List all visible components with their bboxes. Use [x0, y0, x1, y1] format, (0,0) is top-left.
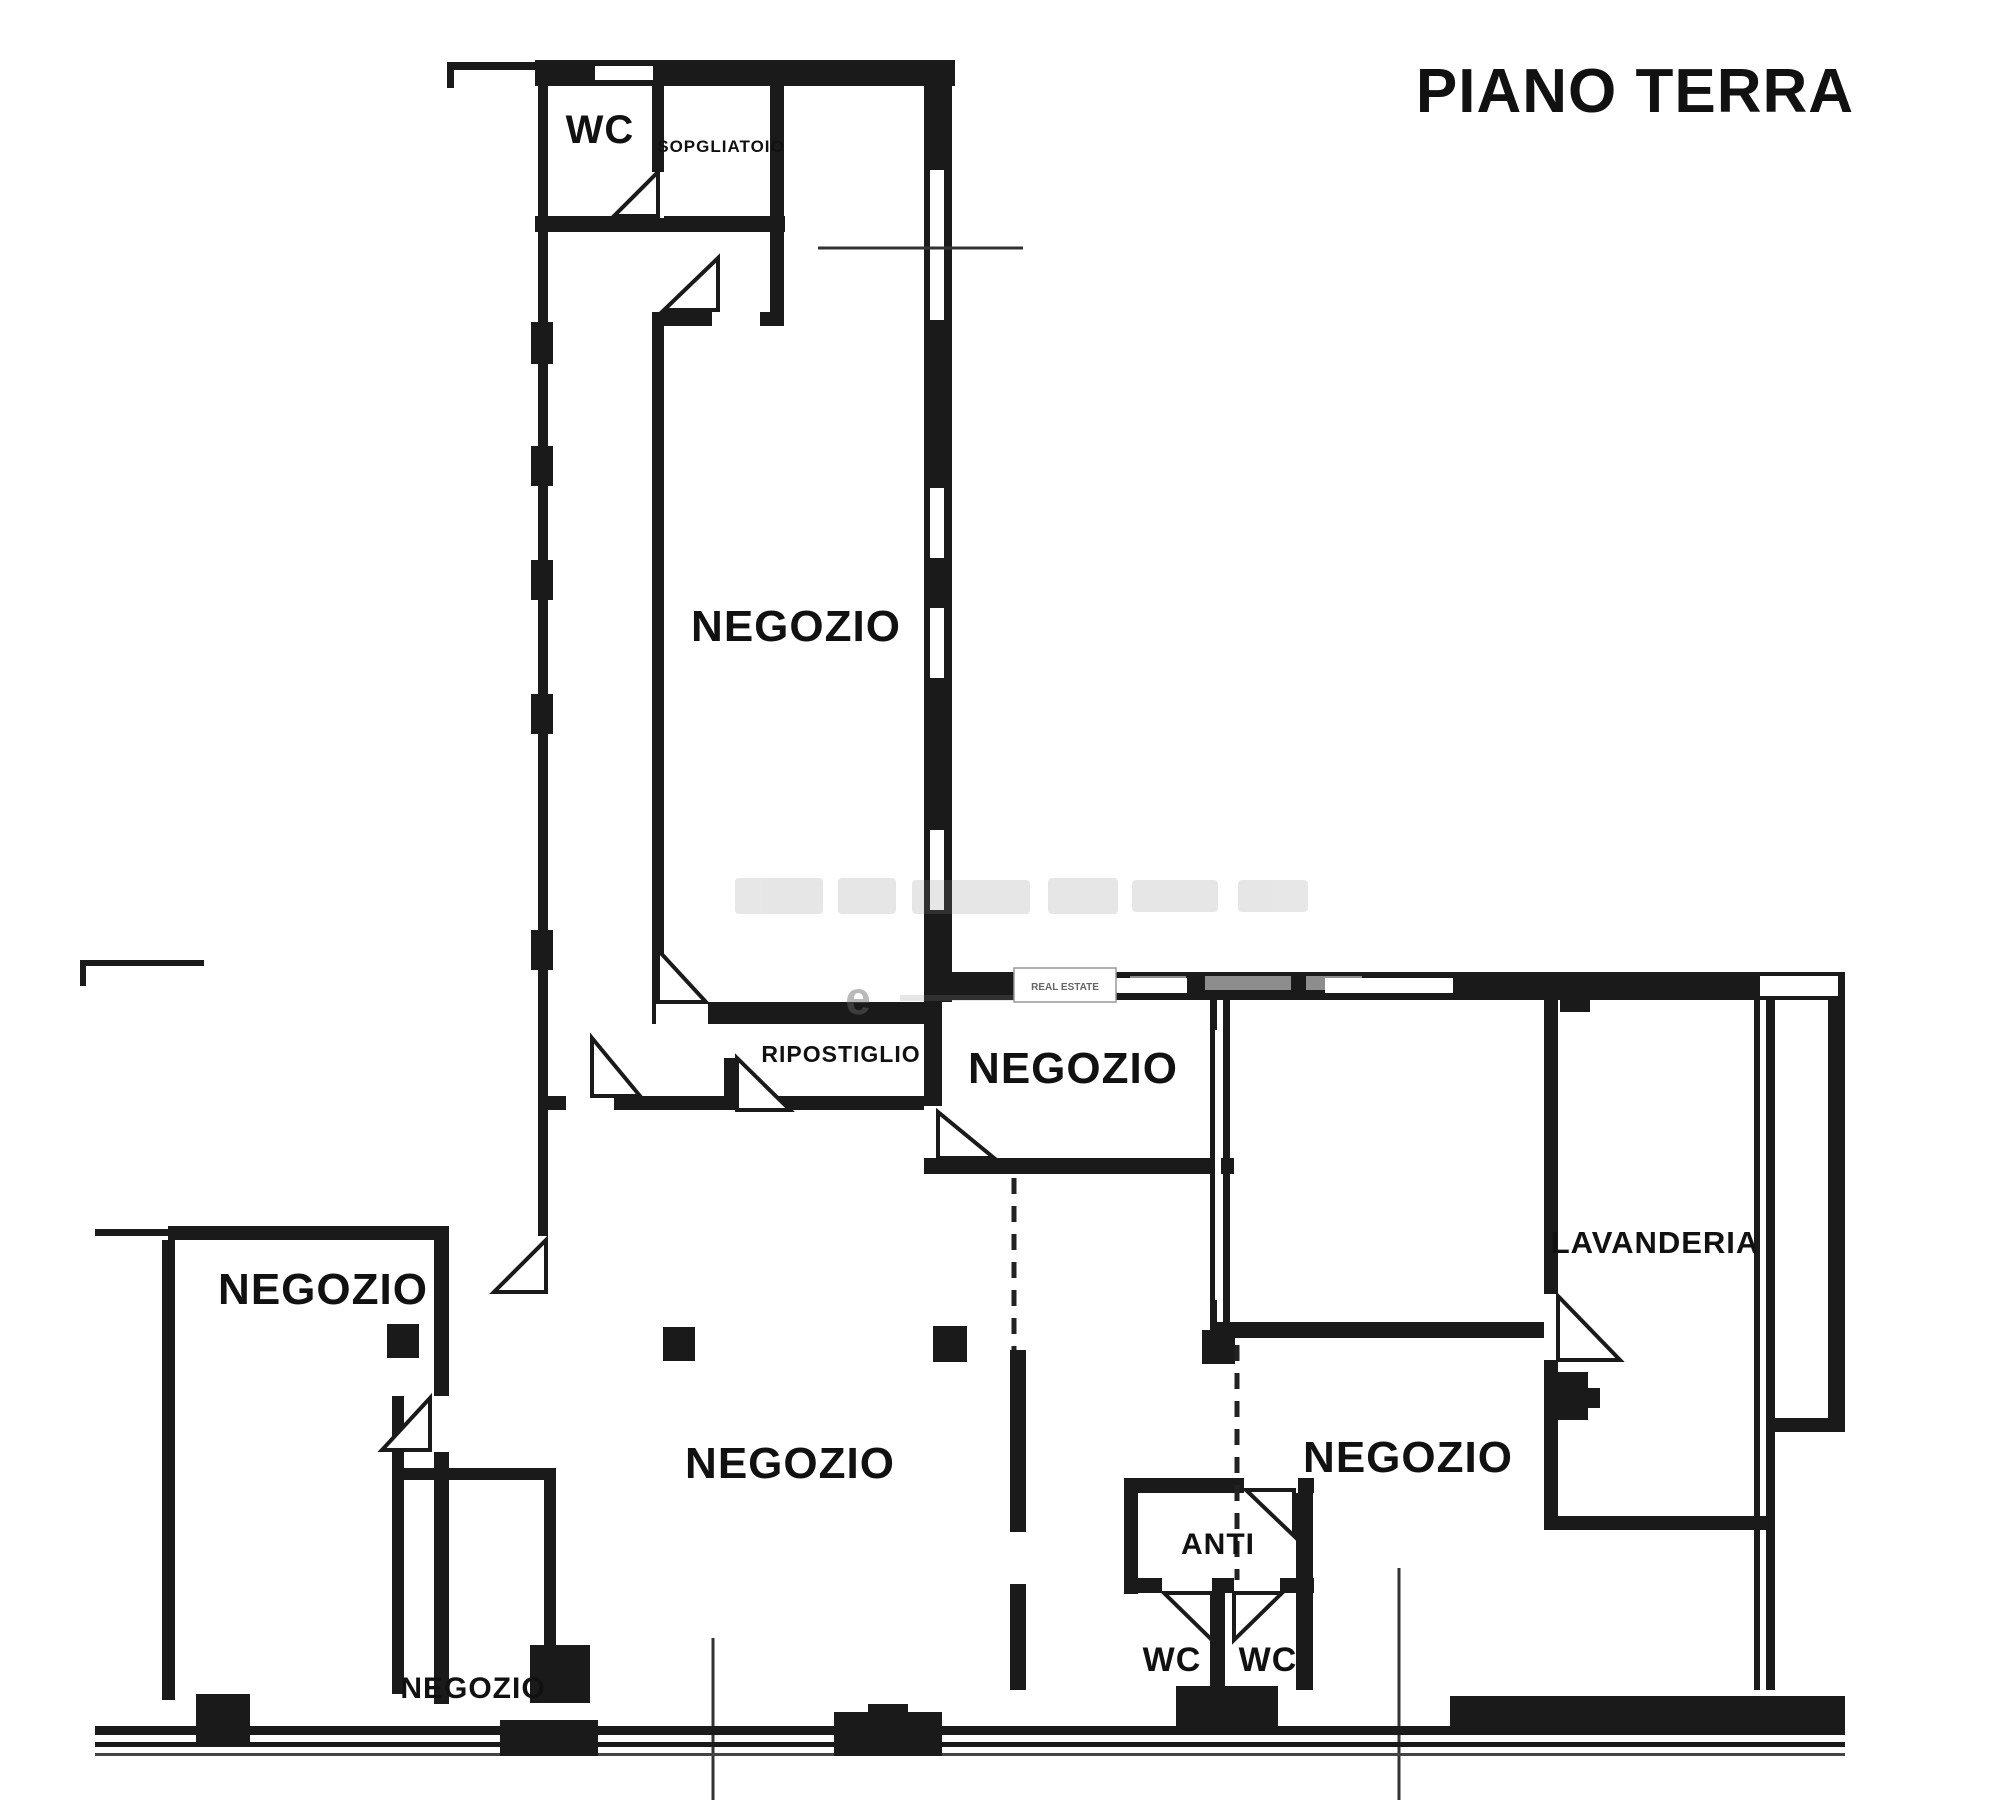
floor-plan: e REAL ESTATE PIANO TERRA WC SOPGLIATOIO… — [0, 0, 2000, 1820]
left-negozio-door-swing — [382, 1398, 430, 1450]
room-label-negozio-right: NEGOZIO — [1303, 1433, 1513, 1482]
room-label-negozio-upper-right: NEGOZIO — [968, 1044, 1178, 1093]
radiator-nub — [1586, 1388, 1600, 1408]
column — [1202, 1330, 1235, 1364]
entrance-threshold — [1176, 1686, 1278, 1728]
radiator — [1548, 1372, 1588, 1420]
room-label-lavanderia: LAVANDERIA — [1551, 1225, 1760, 1260]
door-openings — [432, 66, 1558, 1593]
right-base-wall — [1450, 1696, 1845, 1732]
watermark-box-text: REAL ESTATE — [1031, 982, 1099, 993]
page-title: PIANO TERRA — [1416, 57, 1854, 126]
watermark-letter: e — [845, 972, 871, 1024]
room-label-ripostiglio: RIPOSTIGLIO — [761, 1041, 920, 1067]
pillar — [834, 1712, 942, 1756]
corridor-door-swing — [592, 1038, 640, 1096]
room-label-negozio-small: NEGOZIO — [400, 1672, 545, 1705]
room-label-wc-right: WC — [1239, 1641, 1298, 1679]
vestibule-door-swing — [494, 1240, 546, 1292]
lavanderia-door-swing — [1558, 1296, 1620, 1360]
room-label-wc-left: WC — [1143, 1641, 1202, 1679]
column — [933, 1326, 967, 1362]
wc-left-door-swing — [1164, 1593, 1212, 1640]
column — [663, 1327, 695, 1361]
columns — [387, 1324, 1600, 1420]
room-label-negozio-left: NEGOZIO — [218, 1265, 428, 1314]
room-label-sopgliatoio: SOPGLIATOIO — [657, 137, 785, 156]
storefront-band — [95, 1686, 1845, 1756]
room-labels: PIANO TERRA WC SOPGLIATOIO NEGOZIO RIPOS… — [218, 57, 1854, 1705]
room-label-wc-top: WC — [566, 108, 635, 152]
pillar-notch — [868, 1704, 908, 1714]
wc-top-door-swing — [614, 172, 658, 216]
wc-right-door-swing — [1234, 1593, 1282, 1640]
upper-right-negozio-door-swing — [938, 1112, 994, 1158]
column — [387, 1324, 419, 1358]
room-label-negozio-center: NEGOZIO — [685, 1439, 895, 1488]
pillar — [196, 1694, 250, 1744]
pillar — [500, 1720, 598, 1756]
room-label-negozio-tall: NEGOZIO — [691, 602, 901, 651]
room-label-anti: ANTI — [1181, 1528, 1255, 1561]
tall-negozio-door-swing — [658, 950, 706, 1002]
floor-plan-page: e REAL ESTATE PIANO TERRA WC SOPGLIATOIO… — [0, 0, 2000, 1820]
window-slots — [930, 170, 1838, 1300]
sopgliatoio-door-swing — [664, 258, 718, 310]
